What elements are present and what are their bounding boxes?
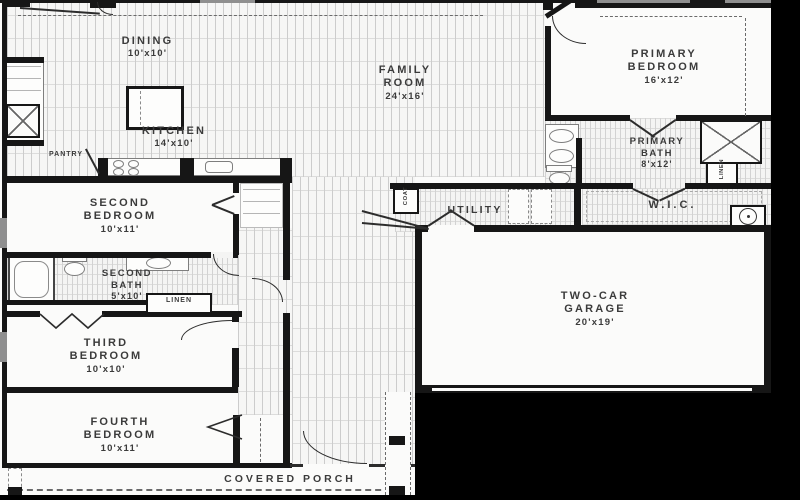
front-door-gap — [303, 464, 369, 467]
overhang-dash-right — [600, 16, 742, 17]
bedroom-bath2-wall — [2, 252, 238, 258]
linen-bath-label: LINEN — [719, 153, 725, 185]
porch-edge-dash — [7, 489, 411, 491]
coat-label: COAT — [403, 183, 409, 209]
third-bedroom-hall-door-arc — [181, 320, 232, 340]
second-bedroom-right-wall-b — [233, 214, 239, 255]
room-label-kitchen: KITCHEN 14'x10' — [118, 125, 230, 150]
top-gray-seg-1 — [200, 0, 255, 3]
bottom-black-strip — [0, 495, 800, 500]
room-label-covered-porch: COVERED PORCH — [178, 473, 402, 486]
overhang-dash-left — [18, 15, 483, 16]
garage-right-wall — [764, 225, 771, 393]
primary-bedroom-top-wall — [575, 3, 771, 8]
dining-dims: 10'x10' — [95, 48, 200, 60]
covered-porch-name: COVERED PORCH — [178, 473, 402, 486]
bathtub-inner — [14, 261, 49, 298]
third-bedroom-name-2: BEDROOM — [43, 350, 169, 363]
wic-name: W.I.C. — [600, 199, 745, 212]
room-label-pantry: PANTRY — [38, 151, 94, 160]
fourth-bedroom-bottom-wall — [2, 463, 292, 468]
fourth-bedroom-right-wall-b — [283, 415, 290, 467]
room-label-primary-bath: PRIMARY BATH 8'x12' — [598, 136, 716, 170]
kitchen-counter — [98, 158, 292, 176]
pantry-name: PANTRY — [49, 151, 83, 158]
floor-plan-canvas: LINEN — [0, 0, 800, 500]
primary-sink-1 — [549, 129, 574, 143]
room-label-dining: DINING 10'x10' — [95, 35, 200, 60]
kitchen-island-seating-dash — [131, 91, 141, 125]
room-label-primary-bedroom: PRIMARY BEDROOM 16'x12' — [598, 48, 730, 86]
garage-left-wall — [415, 232, 422, 391]
counter-wall-chunk-2 — [180, 158, 194, 176]
entry-alcove-dash — [260, 418, 261, 462]
fourth-bedroom-right-wall-a — [283, 393, 290, 403]
primary-bath-name-2: BATH — [598, 148, 716, 160]
room-label-family-room: FAMILY ROOM 24'x16' — [352, 64, 458, 102]
bedroom-bath-wall-b — [676, 115, 771, 121]
primary-entry-arc — [552, 16, 586, 44]
family-dims: 24'x16' — [352, 91, 458, 103]
vanity-separator-wall — [576, 138, 582, 185]
second-bedroom-window — [0, 218, 7, 248]
garage-dims: 20'x19' — [530, 317, 660, 329]
dryer — [531, 189, 552, 224]
second-bath-name-1: SECOND — [82, 268, 172, 280]
garage-door-gap — [428, 225, 474, 232]
primary-bath-dims: 8'x12' — [598, 159, 716, 170]
second-bedroom-name-1: SECOND — [58, 197, 182, 210]
fourth-bedroom-dims: 10'x11' — [55, 443, 185, 455]
third-fourth-wall — [2, 387, 238, 393]
range-burner-1 — [113, 160, 124, 168]
room-label-garage: TWO-CAR GARAGE 20'x19' — [530, 290, 660, 328]
fourth-bedroom-door-zigzag — [204, 413, 246, 441]
room-label-second-bedroom: SECOND BEDROOM 10'x11' — [58, 197, 182, 235]
room-label-fourth-bedroom: FOURTH BEDROOM 10'x11' — [55, 416, 185, 454]
third-bedroom-right-wall-b — [232, 348, 239, 387]
pantry-wall-bottom — [2, 140, 44, 146]
linen-bath-text: LINEN — [719, 159, 725, 179]
third-bedroom-right-wall-a — [232, 311, 239, 322]
room-label-wic: W.I.C. — [600, 199, 745, 212]
porch-post-mid — [389, 436, 405, 445]
primary-bedroom-name-2: BEDROOM — [598, 61, 730, 74]
kitchen-dims: 14'x10' — [118, 138, 230, 150]
second-bedroom-door-leaf-2 — [212, 204, 235, 215]
primary-sink-2 — [549, 149, 574, 163]
pantry-shelf-x — [6, 104, 40, 138]
top-wall-stub-left — [2, 3, 30, 7]
fourth-bedroom-name-1: FOURTH — [55, 416, 185, 429]
pantry-wall-top — [2, 57, 44, 63]
counter-wall-chunk-3 — [280, 158, 292, 176]
room-label-utility: UTILITY — [420, 204, 530, 217]
kitchen-sink — [205, 161, 233, 173]
second-bedroom-door-leaf-1 — [212, 195, 235, 206]
fourth-bedroom-name-2: BEDROOM — [55, 429, 185, 442]
range-burner-3 — [113, 168, 124, 176]
garage-name-2: GARAGE — [530, 303, 660, 316]
family-name-2: ROOM — [352, 77, 458, 90]
porch-post-bottom — [389, 486, 405, 495]
third-bedroom-window — [0, 332, 7, 362]
bottom-right-black-block — [415, 393, 800, 500]
second-bath-name-2: BATH — [82, 280, 172, 292]
wic-left-wall — [574, 189, 581, 229]
water-heater-dot — [747, 215, 750, 218]
range-burner-4 — [128, 168, 139, 176]
second-bedroom-right-wall-a — [233, 183, 239, 193]
family-name-1: FAMILY — [352, 64, 458, 77]
dining-name: DINING — [95, 35, 200, 48]
kitchen-bedroom-wall — [2, 176, 292, 183]
second-bedroom-dims: 10'x11' — [58, 224, 182, 236]
pantry-shelves — [5, 66, 41, 102]
hall-closet-shelves — [243, 186, 280, 225]
garage-door-slit — [432, 388, 752, 391]
third-bedroom-dims: 10'x10' — [43, 364, 169, 376]
coat-text: COAT — [403, 187, 409, 205]
primary-bath-name-1: PRIMARY — [598, 136, 716, 148]
primary-toilet-tank — [546, 165, 572, 172]
primary-bedroom-dims: 16'x12' — [598, 75, 730, 87]
second-bedroom-name-2: BEDROOM — [58, 210, 182, 223]
utility-name: UTILITY — [420, 204, 530, 217]
primary-bedroom-left-wall — [545, 26, 551, 118]
primary-bedroom-name-1: PRIMARY — [598, 48, 730, 61]
kitchen-name: KITCHEN — [118, 125, 230, 138]
room-label-linen-hall: LINEN — [146, 297, 212, 306]
bath-wic-wall-b — [685, 183, 771, 189]
range-burner-2 — [128, 160, 139, 168]
garage-name-1: TWO-CAR — [530, 290, 660, 303]
linen-hall-text: LINEN — [166, 297, 192, 304]
third-bedroom-door-zigzag — [38, 312, 108, 332]
third-bedroom-name-1: THIRD — [43, 337, 169, 350]
hall-left-wall-a — [283, 177, 290, 280]
room-label-third-bedroom: THIRD BEDROOM 10'x10' — [43, 337, 169, 375]
bedroom-bath-wall-a — [545, 115, 630, 121]
primary-window-dash — [745, 18, 746, 116]
